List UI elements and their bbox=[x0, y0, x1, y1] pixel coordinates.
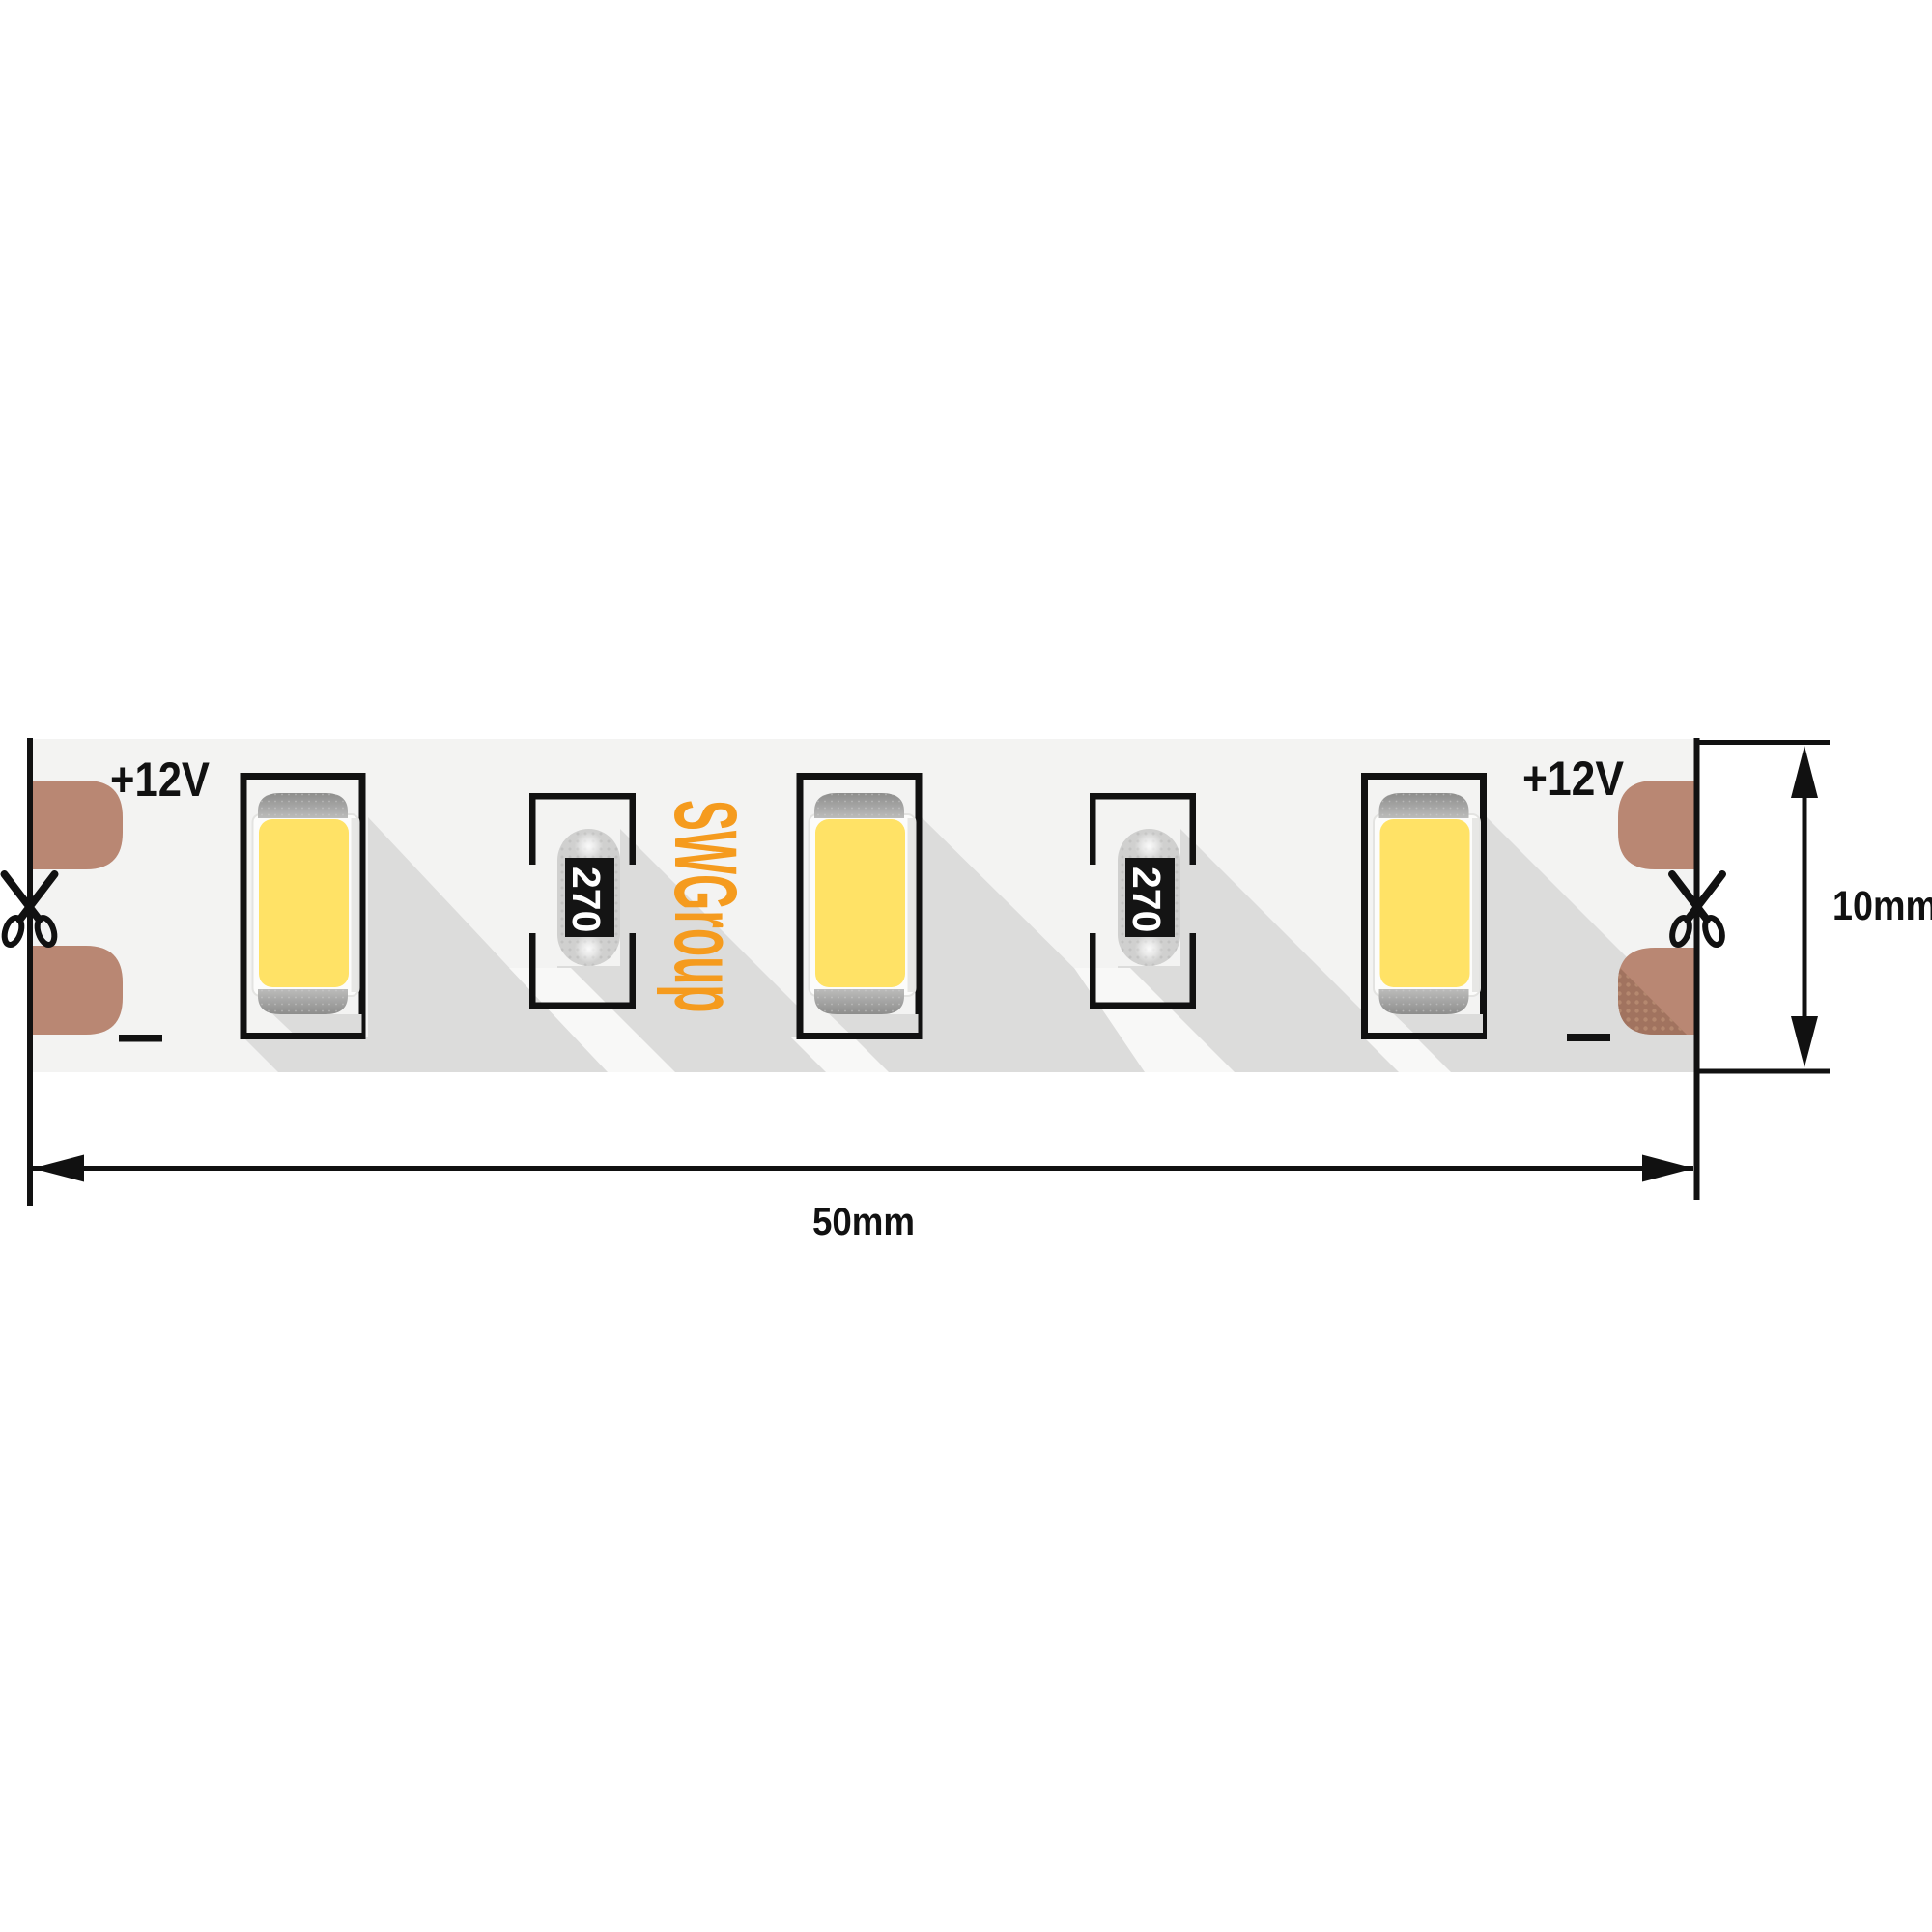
svg-text:SWGroup: SWGroup bbox=[656, 800, 755, 1013]
svg-text:10mm: 10mm bbox=[1833, 883, 1932, 929]
svg-text:+12V: +12V bbox=[1522, 752, 1625, 806]
svg-text:50mm: 50mm bbox=[812, 1201, 915, 1243]
svg-text:+12V: +12V bbox=[110, 753, 211, 807]
